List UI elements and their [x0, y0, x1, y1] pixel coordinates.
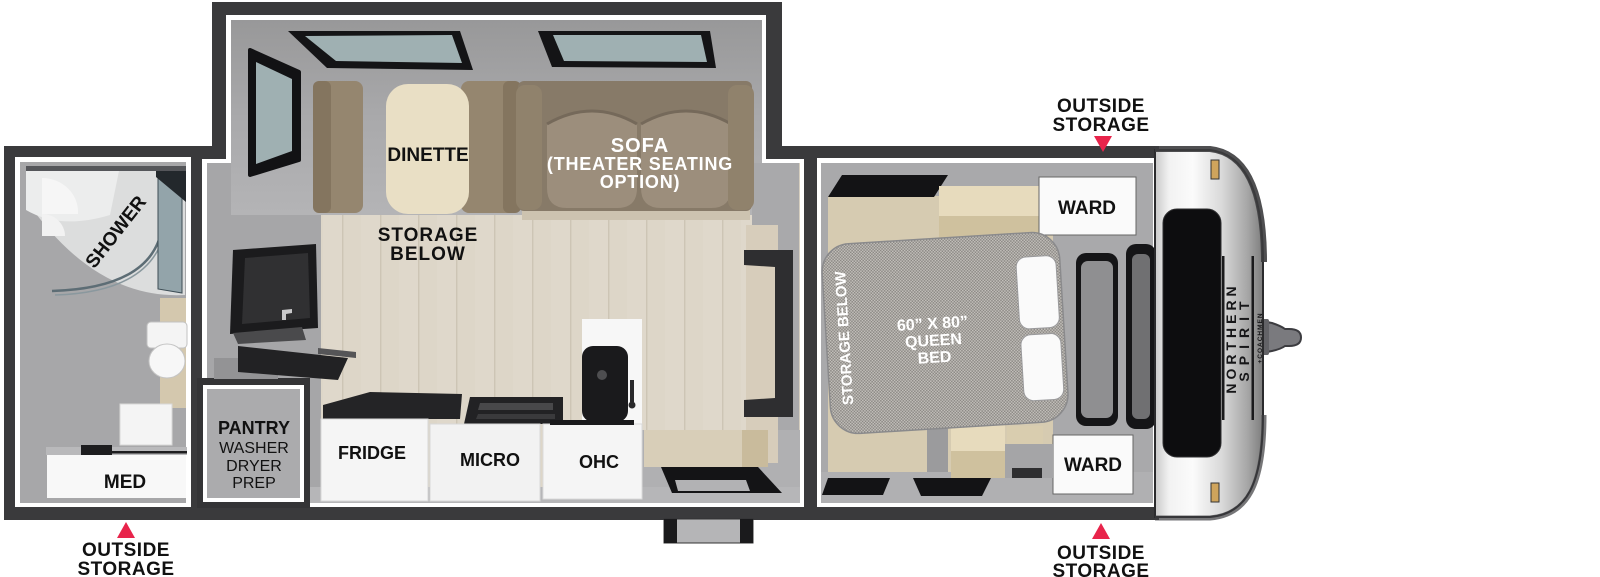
- svg-text:STORAGE: STORAGE: [1052, 115, 1149, 136]
- svg-text:STORAGE: STORAGE: [378, 225, 479, 246]
- svg-text:OUTSIDE: OUTSIDE: [82, 540, 170, 561]
- svg-text:FRIDGE: FRIDGE: [338, 443, 406, 463]
- svg-text:QUEEN: QUEEN: [905, 331, 963, 351]
- svg-text:(THEATER SEATING: (THEATER SEATING: [547, 154, 733, 174]
- svg-text:WASHER: WASHER: [219, 440, 289, 457]
- svg-text:OHC: OHC: [579, 452, 619, 472]
- svg-text:WARD: WARD: [1064, 455, 1122, 476]
- svg-text:BELOW: BELOW: [390, 244, 466, 265]
- svg-text:MED: MED: [104, 472, 146, 493]
- svg-text:PANTRY: PANTRY: [218, 418, 290, 438]
- svg-text:STORAGE: STORAGE: [1052, 561, 1149, 577]
- svg-text:DRYER: DRYER: [226, 458, 282, 475]
- svg-text:DINETTE: DINETTE: [387, 145, 468, 166]
- svg-text:WARD: WARD: [1058, 198, 1116, 219]
- svg-text:MICRO: MICRO: [460, 450, 520, 470]
- svg-text:+COACHMEN: +COACHMEN: [1257, 312, 1264, 363]
- svg-text:BED: BED: [917, 349, 952, 368]
- svg-text:PREP: PREP: [232, 475, 276, 492]
- svg-text:STORAGE: STORAGE: [77, 559, 174, 577]
- svg-text:OPTION): OPTION): [600, 172, 681, 192]
- svg-text:OUTSIDE: OUTSIDE: [1057, 96, 1145, 117]
- svg-text:SPIRIT: SPIRIT: [1236, 294, 1252, 381]
